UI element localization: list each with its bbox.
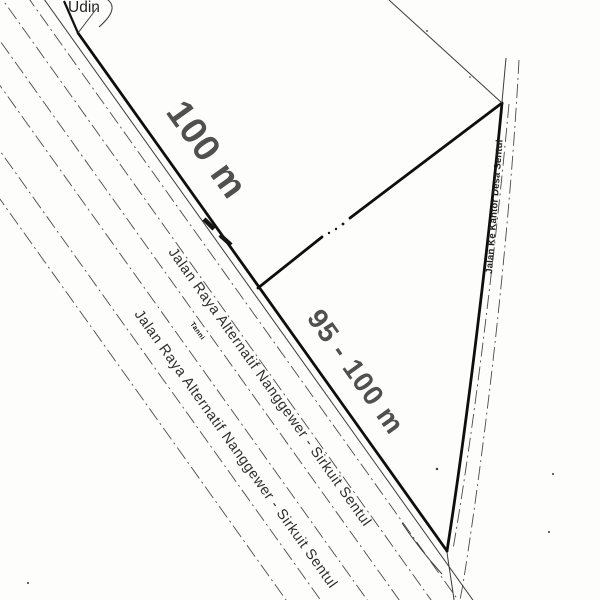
speck — [552, 473, 554, 475]
neighbor-name-label: Udin — [68, 0, 100, 16]
neighbor-boundary-bracket — [99, 0, 112, 27]
side-road-name-label: Jalan Ke Kantor Desa Sentul — [484, 139, 506, 274]
illegible-tiny-text — [220, 235, 231, 245]
boundary-dot — [328, 232, 330, 234]
median-tiny-label: Tanni — [188, 321, 205, 341]
land-plot-sketch: Udin 100 m 95 - 100 m Jalan Raya Alterna… — [0, 0, 600, 600]
main-road-right-edge — [22, 0, 493, 600]
speck — [27, 582, 29, 584]
boundary-dot — [335, 228, 337, 230]
side-road-right-edge — [460, 60, 519, 600]
plot-boundaries — [78, 0, 502, 551]
plot-internal-boundary — [350, 103, 502, 218]
boundary-dot — [342, 223, 345, 226]
plot-boundary-top — [389, 0, 502, 103]
speck — [436, 468, 438, 470]
speck — [426, 30, 428, 32]
speck — [548, 531, 550, 533]
side-road-left-edge-upper — [502, 58, 506, 102]
main-road-lane-line — [12, 0, 483, 600]
speck — [469, 76, 471, 78]
upper-frontage-distance-label: 100 m — [158, 93, 255, 206]
plot-internal-boundary — [258, 237, 322, 288]
side-road — [447, 58, 519, 600]
side-road-left-edge-lower — [447, 552, 454, 600]
main-road-lane-line — [0, 0, 465, 600]
